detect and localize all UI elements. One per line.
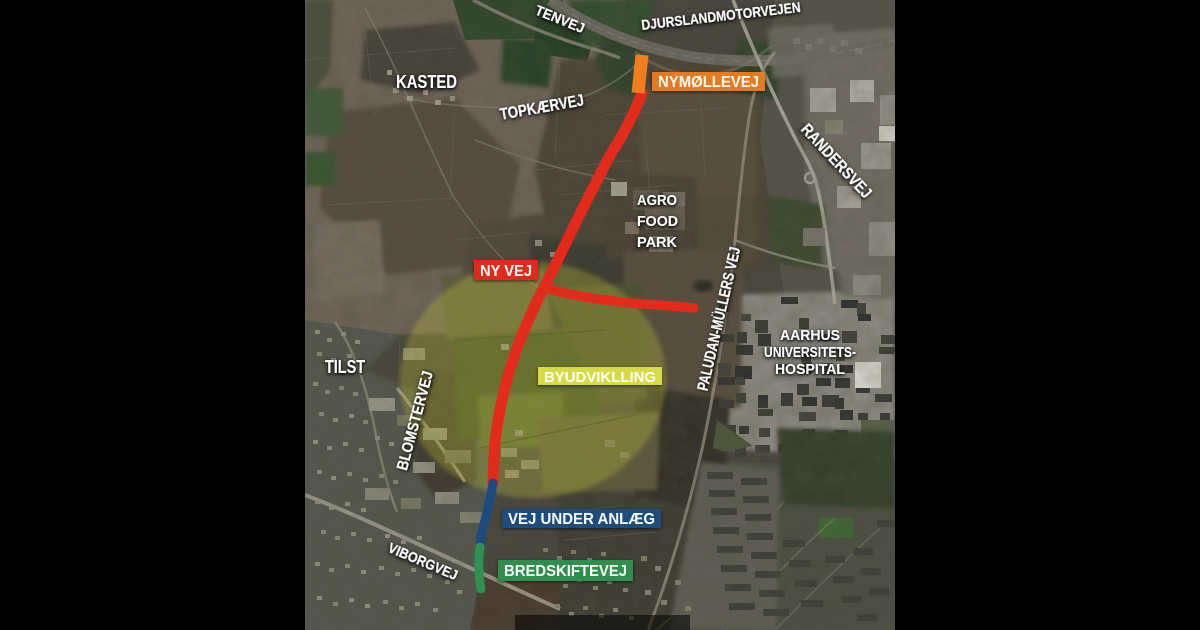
svg-text:NY VEJ: NY VEJ [480, 263, 532, 280]
svg-text:BYUDVIKLLING: BYUDVIKLLING [544, 369, 656, 386]
svg-text:HOSPITAL: HOSPITAL [775, 361, 845, 378]
svg-text:UNIVERSITETS-: UNIVERSITETS- [764, 344, 856, 361]
svg-text:FOOD: FOOD [637, 213, 678, 230]
svg-text:AGRO: AGRO [637, 192, 677, 209]
svg-text:BREDSKIFTEVEJ: BREDSKIFTEVEJ [504, 563, 627, 580]
svg-text:AARHUS: AARHUS [780, 327, 840, 344]
svg-text:TILST: TILST [325, 357, 365, 377]
svg-text:NYMØLLEVEJ: NYMØLLEVEJ [658, 74, 759, 91]
svg-text:VEJ UNDER ANLÆG: VEJ UNDER ANLÆG [508, 511, 655, 528]
svg-text:PARK: PARK [637, 234, 677, 251]
svg-text:KASTED: KASTED [396, 72, 457, 92]
